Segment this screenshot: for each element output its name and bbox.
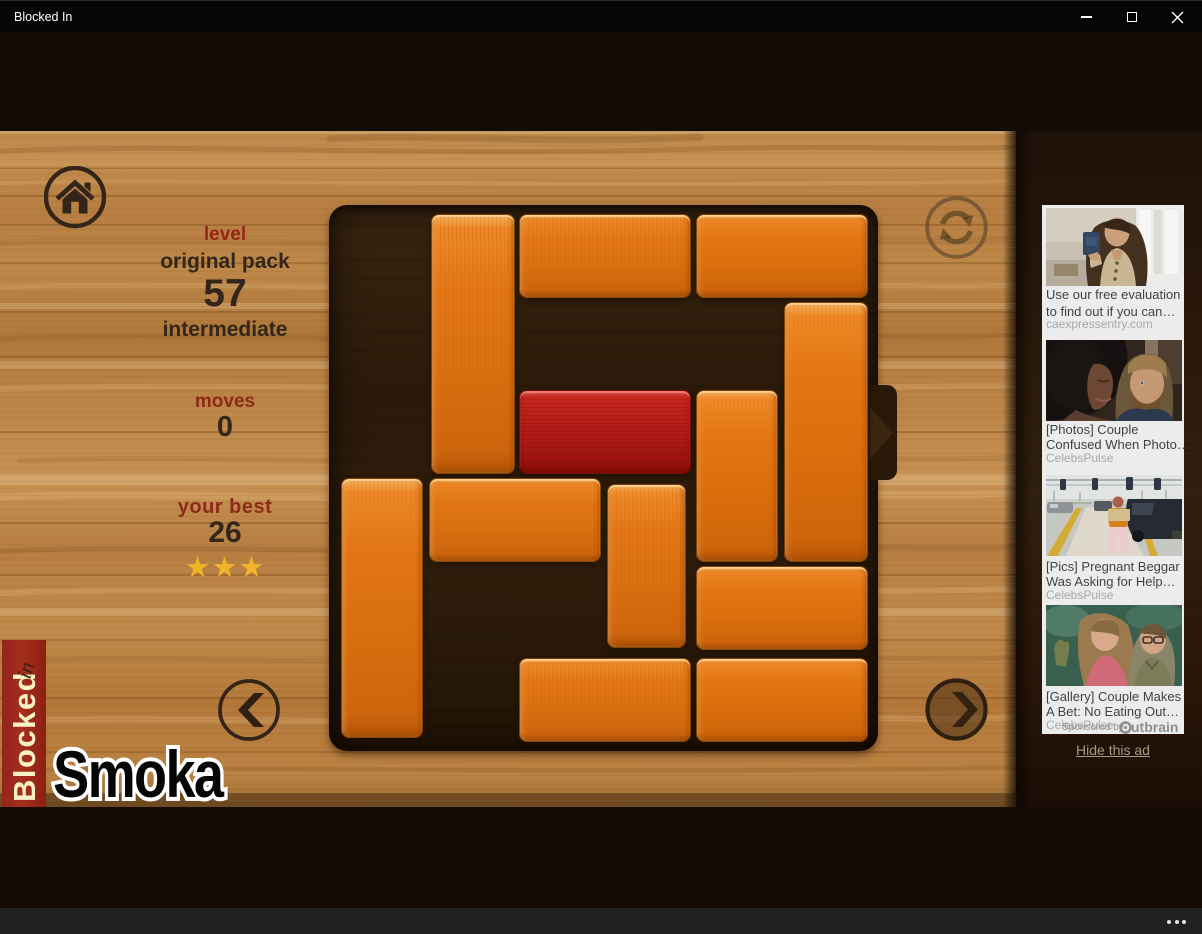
- svg-text:Smoka: Smoka: [53, 737, 224, 811]
- svg-text:Blocked: Blocked: [7, 671, 42, 802]
